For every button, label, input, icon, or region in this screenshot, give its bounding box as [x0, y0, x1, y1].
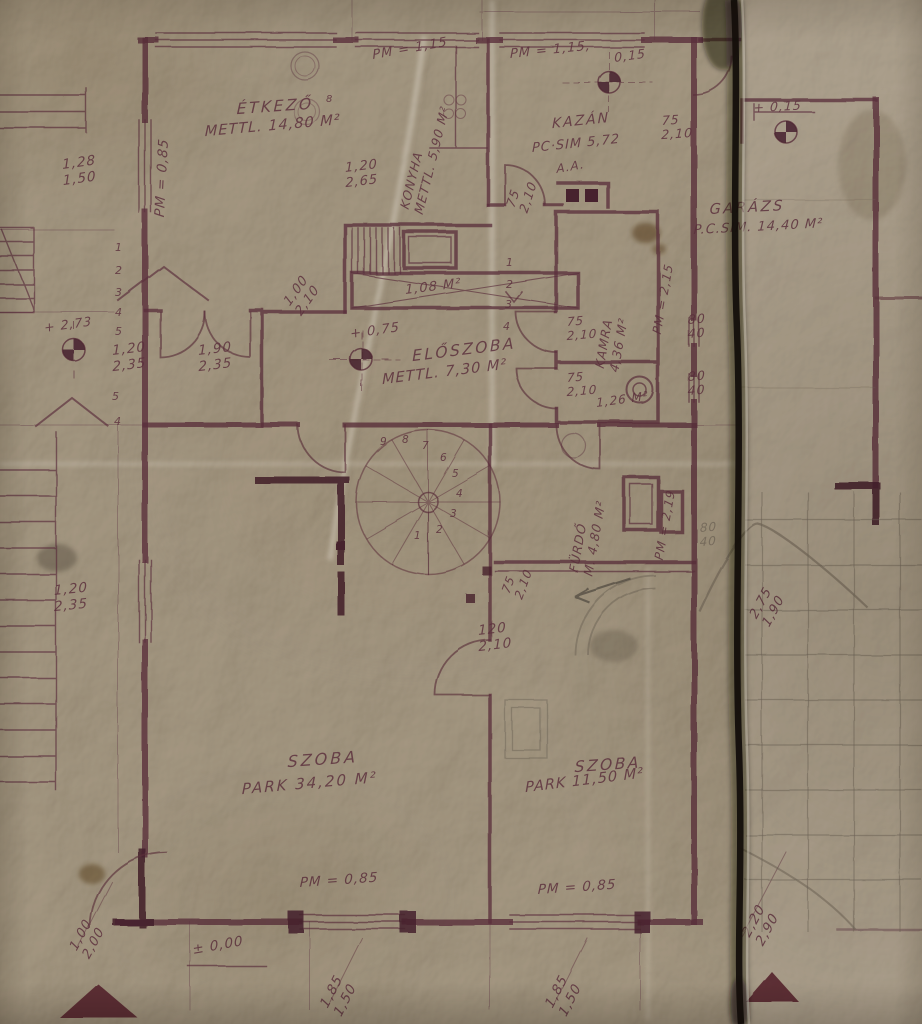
level-label-015: + 0,15	[753, 97, 802, 115]
dim-label-100-200: 1,00 2,00	[68, 917, 109, 962]
room-label-kazan: KAZÁN	[552, 110, 610, 133]
pm-label-bottom2: PM = 0,85	[537, 877, 616, 899]
dim-label-80-40-b: 80 40	[687, 368, 705, 398]
step-number: 4	[503, 320, 510, 333]
dim-label-185-150-b: 1,85 1,50	[543, 973, 585, 1020]
dim-label-75-210-furdo: 75 2,10	[500, 561, 536, 602]
dim-label-100-210: 1,00 2,10	[282, 273, 324, 320]
room-area-kazan: PC·SIM 5,72	[532, 132, 620, 157]
room-label-furdo: FÜRDŐ M. 4,80 M²	[566, 495, 609, 578]
dim-label-80-40-c: 80 40	[700, 520, 718, 549]
dim-label-120-210: 120 2,10	[478, 620, 512, 655]
room-area-wc: 1,26 M²	[596, 389, 649, 411]
step-number: 4	[115, 306, 122, 319]
level-label-273: + 2,73	[44, 313, 92, 335]
level-label-000: ± 0,00	[192, 933, 244, 958]
step-number: 1	[115, 241, 122, 254]
step-number: 5	[112, 390, 119, 403]
dim-label-75-210-kazan: 75 2,10	[504, 174, 540, 216]
pm-label-mid: PM = 1,15	[372, 35, 448, 64]
dim-label-75-210-right: 75 2,10	[661, 112, 694, 143]
room-area-etkezo: METTL. 14,80 M²	[205, 112, 341, 142]
dim-label-185-150-a: 1,85 1,50	[318, 973, 360, 1020]
spiral-step-number: 4	[456, 488, 463, 501]
dim-label-220-290: 2,20 2,90	[740, 902, 782, 949]
spiral-step-number: 7	[422, 440, 429, 453]
room-area-szoba1: PARK 34,20 M²	[242, 768, 378, 798]
room-label-konyha: KONYHA METTL. 5,90 M²	[397, 99, 453, 217]
plan-labels: ÉTKEZŐ METTL. 14,80 M² KONYHA METTL. 5,9…	[0, 0, 922, 1024]
spiral-step-number: 3	[450, 508, 457, 521]
pm-label-furdo: PM = 2,19	[652, 488, 679, 562]
section-label: A.A.	[556, 157, 585, 177]
level-label-075: + 0,75	[350, 320, 400, 343]
dim-label-120-235b: 1,20 2,35	[54, 580, 88, 615]
dim-label-75-210-b: 75 2,10	[567, 369, 598, 399]
floorplan-page: ÉTKEZŐ METTL. 14,80 M² KONYHA METTL. 5,9…	[0, 0, 922, 1024]
spiral-step-number: 8	[402, 434, 409, 447]
dim-label-275-190: 2,75 1,90	[748, 585, 789, 630]
dim-label-75-210-a: 75 2,10	[567, 313, 598, 343]
step-number: 3	[115, 286, 122, 299]
shaft-area-label: 1,08 M²	[405, 276, 461, 299]
dim-label-120-235a: 1,20 2,35	[112, 340, 146, 375]
spiral-step-number: 2	[436, 524, 443, 537]
room-label-szoba1: SZOBA	[287, 747, 358, 772]
room-label-garazs: GARÁZS	[709, 198, 785, 220]
step-number: 5	[115, 325, 122, 338]
pm-label-kazan2: 0,15	[614, 46, 646, 66]
spiral-step-number: 6	[440, 452, 447, 465]
dim-label-80-40-a: 80 40	[687, 311, 705, 341]
step-number: 4	[114, 415, 121, 428]
step-number: 2	[115, 264, 122, 277]
pm-label-kamra: PM = 2,15	[650, 262, 677, 336]
spiral-step-number: 1	[414, 530, 421, 543]
step-number: 1	[506, 256, 513, 269]
room-area-garazs: P.C.SIM. 14,40 M²	[693, 216, 823, 239]
dim-label-190-235: 1,90 2,35	[198, 340, 232, 375]
pm-label-kazan: PM = 1,15,	[510, 39, 591, 63]
spiral-step-number: 5	[452, 468, 459, 481]
pm-label-bottom1: PM = 0,85	[299, 870, 378, 892]
room-label-kamra: KAMRA 4,36 M²	[592, 312, 631, 374]
pm-label-left: PM = 0,85	[152, 137, 172, 218]
step-number: 3	[505, 298, 512, 311]
spiral-step-number: 9	[380, 436, 387, 449]
step-number: 2	[506, 278, 513, 291]
dim-label-128-150: 1,28 1,50	[62, 153, 97, 189]
dim-label-120-265: 1,20 2,65	[345, 158, 378, 192]
note-label-8: 8	[326, 94, 332, 106]
